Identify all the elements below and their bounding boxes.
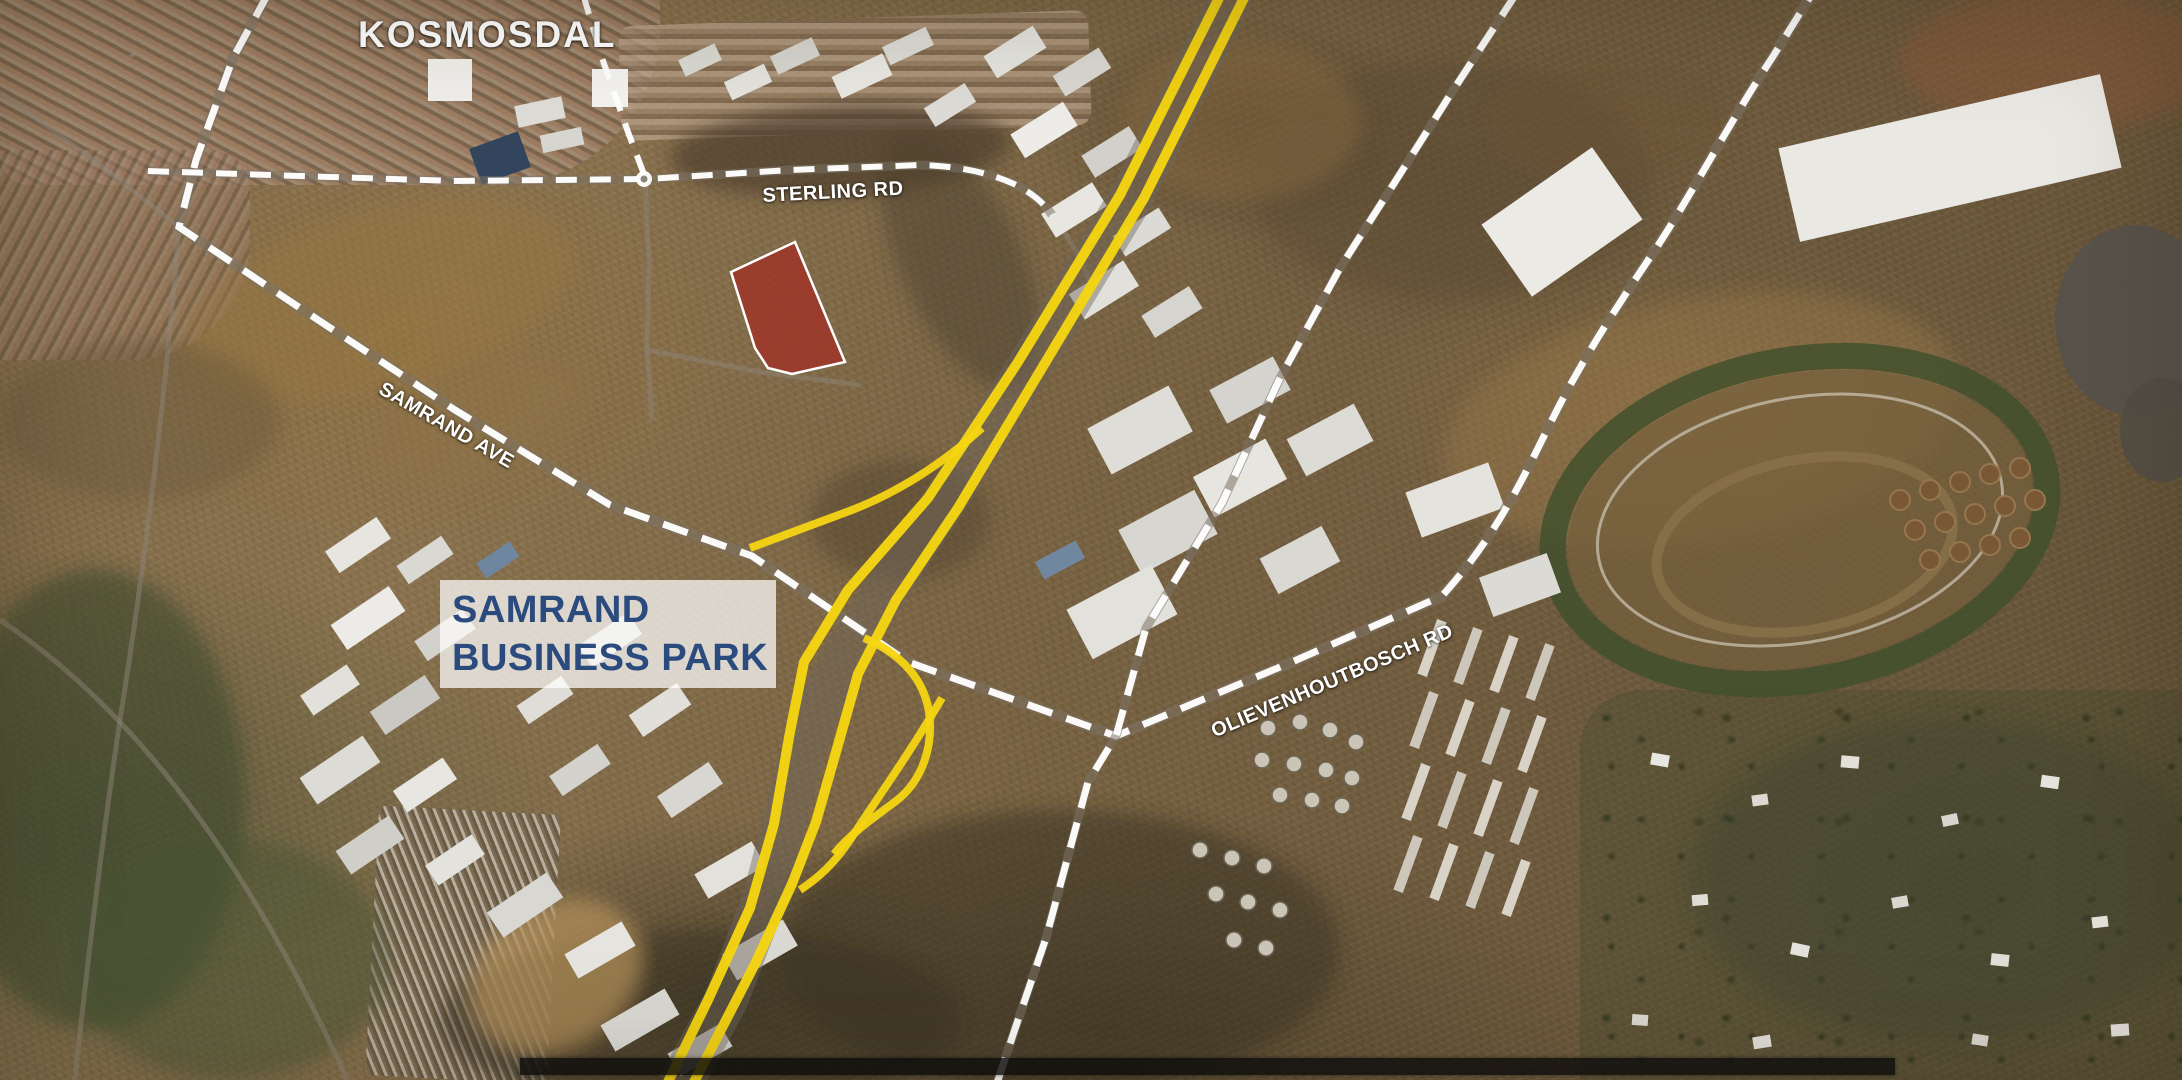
tank bbox=[1905, 520, 1925, 540]
building bbox=[1193, 438, 1287, 517]
building bbox=[1429, 843, 1458, 901]
map-overlay-svg bbox=[0, 0, 2182, 1080]
building bbox=[300, 735, 381, 804]
round-hut bbox=[1226, 932, 1242, 948]
business-park-label-line1: SAMRAND bbox=[452, 586, 776, 634]
building bbox=[629, 683, 692, 737]
round-hut bbox=[1256, 858, 1272, 874]
round-hut bbox=[1304, 792, 1320, 808]
aerial-map[interactable]: KOSMOSDAL STERLING RD SAMRAND AVE OLIEVE… bbox=[0, 0, 2182, 1080]
tank bbox=[1950, 472, 1970, 492]
building bbox=[1752, 1035, 1772, 1050]
tank bbox=[1935, 512, 1955, 532]
building bbox=[370, 675, 440, 735]
building bbox=[393, 757, 457, 812]
highlighted-site-polygon bbox=[731, 242, 845, 374]
building bbox=[1525, 643, 1554, 701]
tank bbox=[1920, 550, 1940, 570]
building bbox=[1517, 715, 1546, 773]
tank bbox=[1890, 490, 1910, 510]
building bbox=[1260, 526, 1341, 594]
round-hut bbox=[1318, 762, 1334, 778]
building bbox=[2111, 1023, 2130, 1036]
terrain-patch bbox=[70, 840, 390, 1080]
building bbox=[2091, 916, 2108, 929]
building bbox=[832, 53, 893, 98]
terrain-patch bbox=[1690, 720, 2182, 1040]
tank bbox=[1995, 496, 2015, 516]
building bbox=[514, 96, 566, 127]
building bbox=[325, 517, 391, 573]
round-hut bbox=[1348, 734, 1364, 750]
tank bbox=[1965, 504, 1985, 524]
building bbox=[1035, 540, 1085, 579]
building bbox=[1650, 753, 1670, 768]
building bbox=[1501, 859, 1530, 917]
building bbox=[657, 762, 723, 818]
roundabout-island bbox=[641, 176, 648, 183]
round-hut bbox=[1192, 842, 1208, 858]
building bbox=[396, 536, 453, 584]
building bbox=[882, 27, 934, 65]
bottom-redaction-bar bbox=[520, 1058, 1895, 1075]
round-hut bbox=[1334, 798, 1350, 814]
building bbox=[1409, 691, 1438, 749]
building bbox=[1053, 48, 1112, 97]
samrand-business-park-callout: SAMRAND BUSINESS PARK bbox=[440, 580, 776, 688]
terrain-patch bbox=[1490, 60, 1730, 180]
round-hut bbox=[1272, 902, 1288, 918]
tank bbox=[2010, 528, 2030, 548]
minor-road bbox=[0, 92, 179, 227]
dam-pond bbox=[2055, 225, 2182, 482]
building bbox=[331, 586, 406, 650]
building bbox=[1692, 894, 1709, 906]
building bbox=[1445, 699, 1474, 757]
building bbox=[1489, 635, 1518, 693]
building bbox=[770, 37, 820, 75]
building bbox=[1841, 755, 1860, 769]
building bbox=[1751, 793, 1768, 806]
tank bbox=[2025, 490, 2045, 510]
business-park-label-line2: BUSINESS PARK bbox=[452, 634, 776, 682]
round-hut bbox=[1254, 752, 1270, 768]
round-hut bbox=[1344, 770, 1360, 786]
building bbox=[1453, 627, 1482, 685]
round-hut bbox=[1272, 787, 1288, 803]
building bbox=[1087, 385, 1193, 474]
building bbox=[1393, 835, 1422, 893]
tank bbox=[2010, 458, 2030, 478]
building bbox=[336, 815, 405, 874]
building bbox=[724, 64, 772, 101]
building bbox=[1437, 771, 1466, 829]
building bbox=[1473, 779, 1502, 837]
round-hut bbox=[1286, 756, 1302, 772]
building bbox=[428, 59, 472, 101]
round-hut bbox=[1292, 714, 1308, 730]
round-hut bbox=[1208, 886, 1224, 902]
building bbox=[678, 43, 722, 76]
building bbox=[2040, 775, 2059, 789]
building bbox=[1465, 851, 1494, 909]
round-hut bbox=[1258, 940, 1274, 956]
building bbox=[1509, 787, 1538, 845]
area-label-kosmosdal: KOSMOSDAL bbox=[358, 14, 617, 56]
building bbox=[425, 834, 485, 885]
building bbox=[300, 664, 360, 715]
building bbox=[540, 127, 585, 153]
terrain-patch bbox=[0, 340, 280, 500]
building bbox=[1990, 953, 2009, 967]
building bbox=[1287, 404, 1374, 477]
building bbox=[1632, 1014, 1649, 1026]
building bbox=[1141, 286, 1202, 338]
building bbox=[984, 26, 1047, 79]
round-hut bbox=[1240, 894, 1256, 910]
building bbox=[1479, 553, 1561, 617]
tank bbox=[1950, 542, 1970, 562]
building bbox=[549, 744, 611, 796]
round-hut bbox=[1224, 850, 1240, 866]
building bbox=[1010, 102, 1077, 159]
tank bbox=[1920, 480, 1940, 500]
round-hut bbox=[1322, 722, 1338, 738]
minor-road bbox=[645, 177, 652, 420]
building bbox=[1481, 707, 1510, 765]
building bbox=[476, 541, 519, 578]
tank bbox=[1980, 464, 2000, 484]
terrain-patch bbox=[780, 810, 1340, 1080]
building bbox=[1401, 763, 1430, 821]
tank bbox=[1980, 535, 2000, 555]
